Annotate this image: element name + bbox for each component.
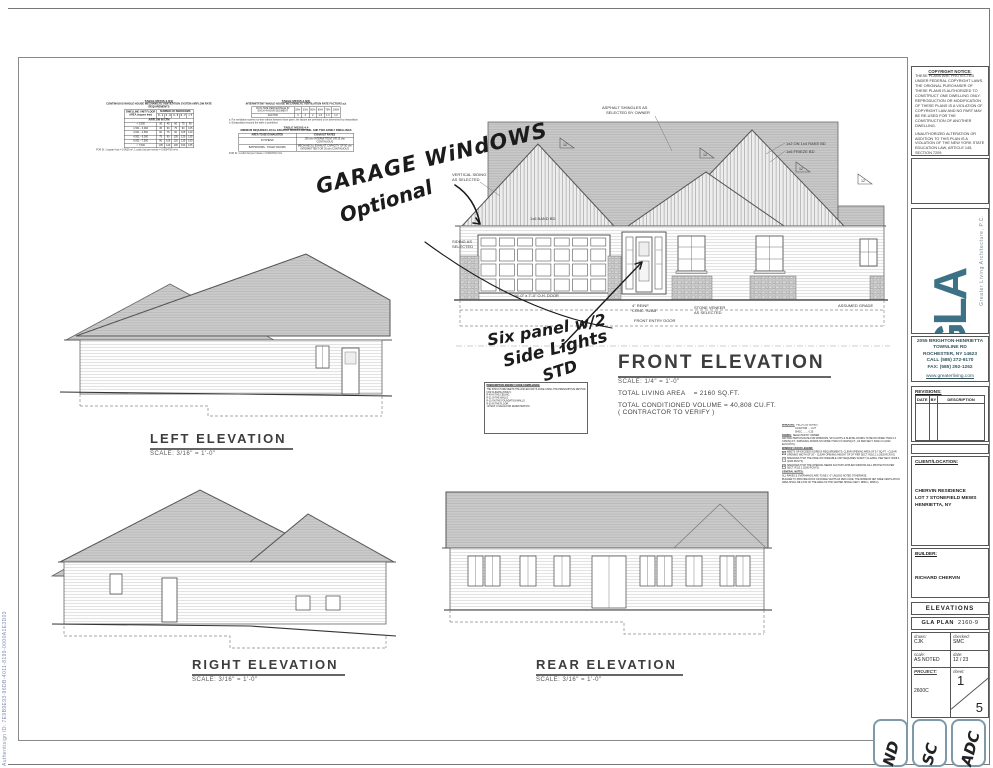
svg-text:12: 12	[799, 167, 803, 171]
right-roof	[838, 206, 884, 226]
plan-number: 2160-9	[958, 620, 978, 626]
left-elevation-drawing	[58, 240, 398, 432]
table-row: KITCHENS100 cfm INTERMITTENT OR 25 cfm C…	[239, 137, 354, 144]
initial-stamp: SC	[912, 719, 947, 767]
table-local-exhaust: TABLE M1505.4.4 MINIMUM REQUIRED LOCAL E…	[229, 126, 363, 155]
outer-top-border	[8, 8, 989, 9]
sheet-title: ELEVATIONS	[912, 603, 988, 612]
info-grid: drawn:CJK checked:SMC scale:AS NOTED dat…	[911, 632, 989, 718]
table-row: > 7,500105120 135150165	[124, 144, 193, 148]
svg-text:12: 12	[861, 179, 865, 183]
website: www.greaterliving.com	[915, 374, 985, 379]
sheet-total: 5	[976, 700, 983, 715]
authentisign-watermark: Authentisign ID: 7E9B9E93-96DB-4011-8199…	[2, 528, 8, 766]
front-elevation-title: FRONT ELEVATION	[618, 352, 831, 378]
svg-text:12: 12	[703, 153, 707, 157]
legend-item: EMEETS OR EXCEEDS EGRESS REQUIREMENTS: C…	[782, 451, 901, 457]
legend-item: TSPECIFIES THAT THE PANE OR OPERABLE UNI…	[782, 458, 901, 464]
blank-box	[911, 158, 989, 204]
front-elevation-label: FRONT ELEVATION SCALE: 1/4" = 1'-0" TOTA…	[618, 352, 838, 416]
svg-text:SELECTED BY OWNER: SELECTED BY OWNER	[606, 110, 650, 115]
outer-bottom-border	[8, 764, 989, 765]
builder-name: RICHARD CHERVIN	[915, 576, 985, 581]
initial-stamps: ND SC ADC	[873, 719, 986, 767]
svg-text:1x6 FRIEZE BD: 1x6 FRIEZE BD	[786, 149, 815, 154]
revisions-box: REVISIONS: DATEBYDESCRIPTION	[911, 386, 989, 442]
gla-logo: GLA	[923, 270, 977, 334]
plan-number-bar: GLA PLAN 2160-9	[911, 617, 989, 630]
blank-box-2	[911, 444, 989, 454]
right-elevation-drawing	[50, 478, 398, 658]
window-door-specs: WINDOWS: PELLA 250 SERIES U-FACTOR .... …	[782, 424, 902, 590]
client-location-box: CLIENT/LOCATION: CHERVIN RESIDENCELOT 7 …	[911, 456, 989, 546]
sheet-number: 1	[957, 673, 964, 688]
energy-code-box: PRESCRIPTIVE ENERGY CODE COMPLIANCE: THE…	[484, 382, 588, 434]
rear-elevation-label: REAR ELEVATION SCALE: 3/16" = 1'-0"	[536, 656, 683, 683]
rear-elevation-drawing	[424, 478, 786, 658]
outer-right-border	[989, 8, 990, 765]
builder-box: BUILDER: RICHARD CHERVIN	[911, 548, 989, 598]
left-elevation-label: LEFT ELEVATION SCALE: 3/16" = 1'-0"	[150, 430, 293, 457]
initial-stamp: ND	[873, 719, 908, 767]
copyright-box: COPYRIGHT NOTICE: THESE PLANS ARE PROTEC…	[911, 66, 989, 156]
svg-text:AS SELECTED: AS SELECTED	[694, 310, 722, 315]
sheet-number-cell: sheet: 1 5	[951, 668, 988, 717]
svg-text:1x2 ON 1x4 RAKE BD: 1x2 ON 1x4 RAKE BD	[786, 141, 826, 146]
table-row: FACTOR43 21.51.31.0	[252, 114, 341, 118]
initial-stamp: ADC	[951, 719, 986, 767]
right-elevation-label: RIGHT ELEVATION SCALE: 3/16" = 1'-0"	[192, 656, 345, 683]
address-box: 2055 BRIGHTON-HENRIETTATOWNLINE RDROCHES…	[911, 336, 989, 382]
gla-logo-box: GLA Greater Living Architecture, P.C.	[911, 208, 989, 334]
table-intermittent-factors: TABLE M1505.4.3(2) INTERMITTENT WHOLE-HO…	[229, 100, 363, 125]
table-continuous-ventilation: TABLE M1505.4.3(1) CONTINUOUS WHOLE-HOUS…	[96, 100, 222, 156]
drawing-sheet: Authentisign ID: 7E9B9E93-96DB-4011-8199…	[0, 0, 993, 768]
table-row: BATHROOMS - TOILET ROOMSMECHANICAL EXHAU…	[239, 144, 354, 151]
sheet-title-bar: ELEVATIONS	[911, 602, 989, 615]
legend-item: FPSPECIFIES THAT THE OPENING NEEDS FACTO…	[782, 464, 901, 470]
table-row: RUN-TIME PERCENTAGE IN EACH 4-HOUR SEGME…	[252, 107, 341, 114]
gla-logo-side-text: Greater Living Architecture, P.C.	[979, 215, 985, 306]
svg-text:ASSUMED GRADE: ASSUMED GRADE	[838, 303, 873, 308]
svg-text:12: 12	[563, 143, 567, 147]
